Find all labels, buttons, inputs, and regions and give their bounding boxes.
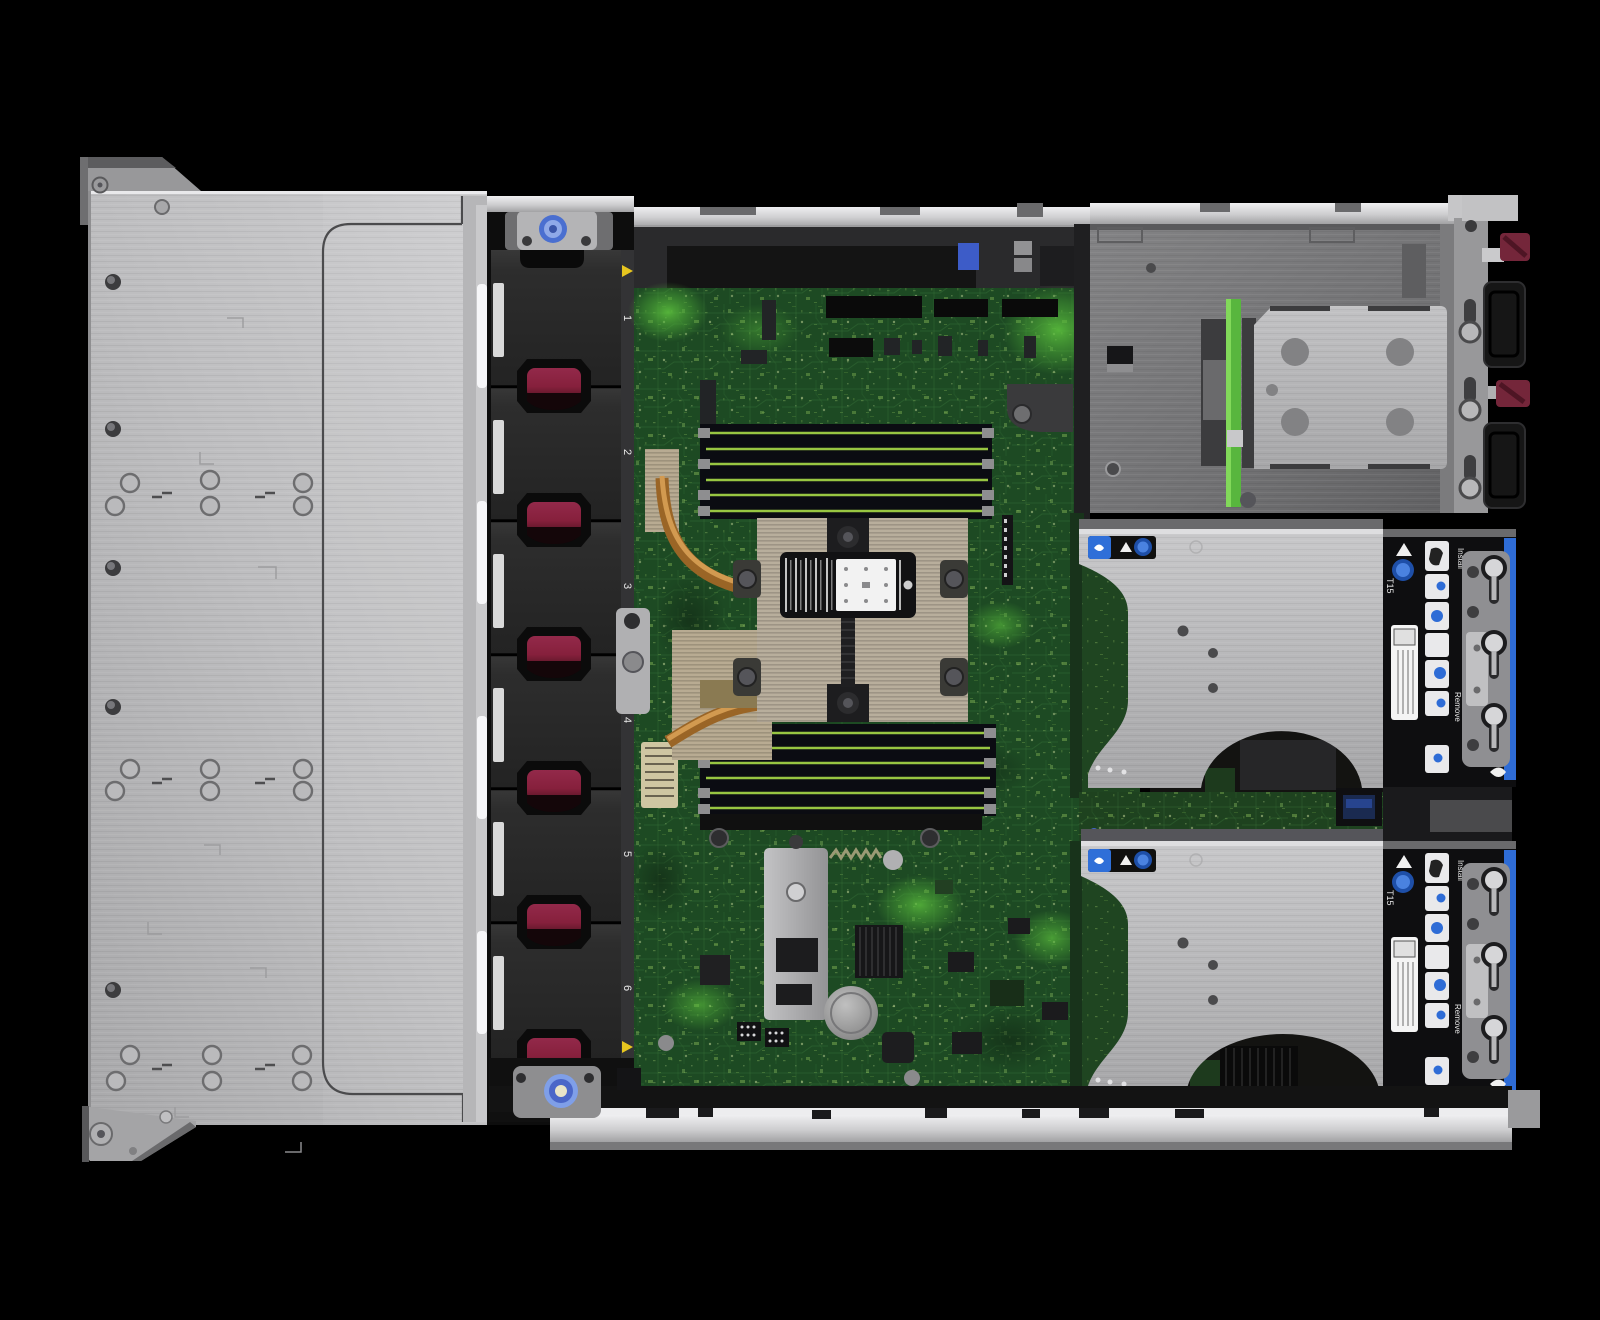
svg-text:T15: T15: [1385, 890, 1395, 906]
svg-text:2: 2: [621, 449, 633, 455]
svg-text:3: 3: [621, 583, 633, 589]
svg-text:Remove: Remove: [1453, 692, 1462, 722]
svg-text:Remove: Remove: [1453, 1004, 1462, 1034]
svg-text:5: 5: [621, 851, 633, 857]
svg-text:6: 6: [621, 985, 633, 991]
svg-text:4: 4: [621, 717, 633, 723]
svg-text:T15: T15: [1385, 578, 1395, 594]
